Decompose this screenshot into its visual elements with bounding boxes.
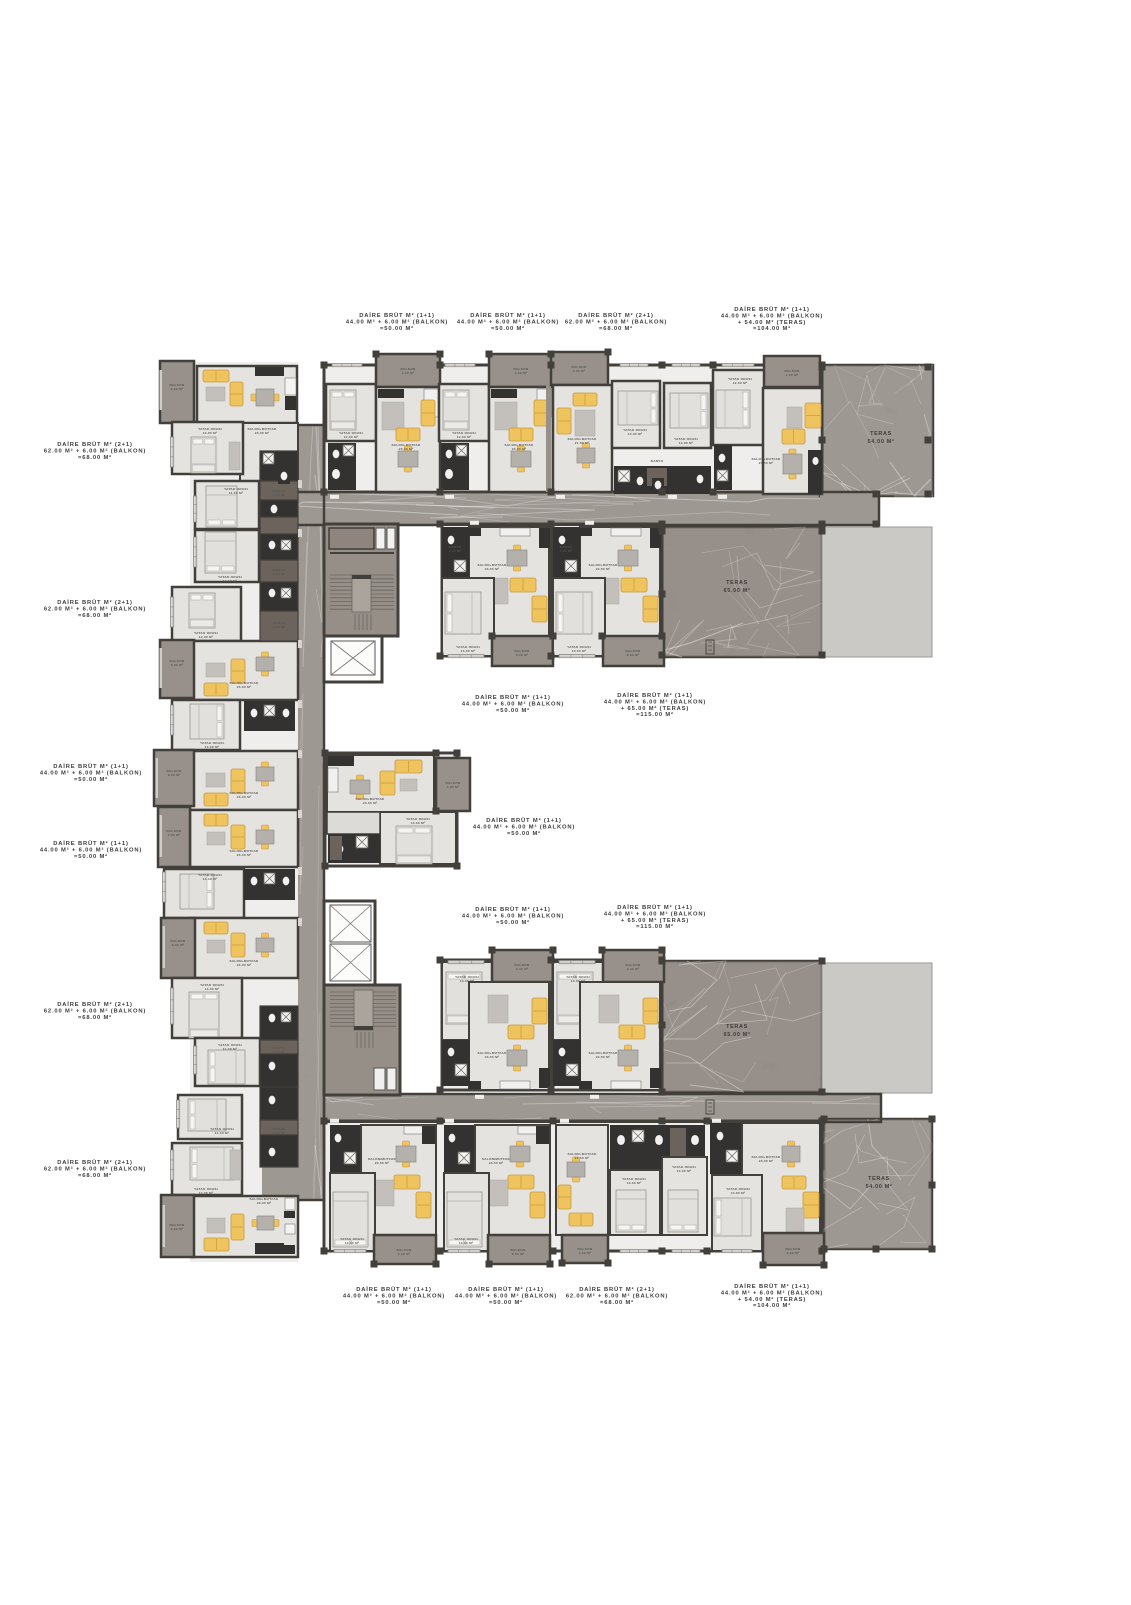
svg-text:44.00 M² + 6.00 M² (BALKON): 44.00 M² + 6.00 M² (BALKON): [462, 700, 564, 707]
svg-text:23.00 M²: 23.00 M²: [257, 1201, 272, 1205]
svg-text:13.00 M²: 13.00 M²: [461, 649, 476, 653]
svg-text:6.00 M²: 6.00 M²: [787, 1251, 800, 1255]
svg-text:44.00 M² + 6.00 M² (BALKON): 44.00 M² + 6.00 M² (BALKON): [604, 910, 706, 917]
svg-text:=50.00 M²: =50.00 M²: [74, 776, 108, 783]
svg-text:6.00 M²: 6.00 M²: [168, 833, 181, 837]
svg-text:=115.00 M²: =115.00 M²: [636, 711, 674, 718]
svg-text:=68.00 M²: =68.00 M²: [600, 1299, 634, 1306]
svg-text:+ 54.00 M² (TERAS): + 54.00 M² (TERAS): [738, 1296, 806, 1303]
svg-text:6.00 M²: 6.00 M²: [171, 1227, 184, 1231]
svg-text:11.00 M²: 11.00 M²: [215, 1131, 229, 1135]
svg-text:44.00 M² + 6.00 M² (BALKON): 44.00 M² + 6.00 M² (BALKON): [721, 312, 823, 319]
svg-text:6.00 M²: 6.00 M²: [171, 663, 184, 667]
svg-text:DAİRE BRÜT M² (1+1): DAİRE BRÜT M² (1+1): [356, 1286, 432, 1293]
svg-text:6.00 M²: 6.00 M²: [172, 943, 185, 947]
svg-text:10.00 M²: 10.00 M²: [628, 432, 643, 436]
svg-text:DAİRE BRÜT M² (1+1): DAİRE BRÜT M² (1+1): [470, 312, 546, 319]
svg-text:11.00 M²: 11.00 M²: [223, 1047, 237, 1051]
svg-text:23.00 M²: 23.00 M²: [237, 853, 252, 857]
svg-text:4.00 M²: 4.00 M²: [273, 625, 286, 629]
svg-text:=50.00 M²: =50.00 M²: [489, 1299, 523, 1306]
svg-text:23.50 M²: 23.50 M²: [759, 461, 774, 465]
svg-text:=68.00 M²: =68.00 M²: [78, 1014, 112, 1021]
svg-text:DAİRE BRÜT M² (1+1): DAİRE BRÜT M² (1+1): [475, 694, 551, 701]
svg-text:44.00 M² + 6.00 M² (BALKON): 44.00 M² + 6.00 M² (BALKON): [473, 823, 575, 830]
svg-text:13.00 M²: 13.00 M²: [731, 1191, 746, 1195]
svg-text:23.00 M²: 23.00 M²: [759, 1159, 774, 1163]
svg-text:54.00 M²: 54.00 M²: [868, 439, 895, 445]
svg-text:TERAS: TERAS: [868, 1176, 890, 1182]
svg-text:4.00 M²: 4.00 M²: [515, 371, 528, 375]
svg-text:TERAS: TERAS: [726, 1024, 748, 1030]
svg-text:=50.00 M²: =50.00 M²: [377, 1299, 411, 1306]
svg-text:DAİRE BRÜT M² (1+1): DAİRE BRÜT M² (1+1): [734, 306, 810, 313]
svg-text:23.00 M²: 23.00 M²: [255, 431, 270, 435]
svg-text:21.50 M²: 21.50 M²: [575, 441, 590, 445]
svg-text:6.00 M²: 6.00 M²: [516, 653, 529, 657]
svg-text:13.00 M²: 13.00 M²: [205, 745, 220, 749]
svg-text:DAİRE BRÜT M² (1+1): DAİRE BRÜT M² (1+1): [53, 763, 129, 770]
svg-text:12.00 M²: 12.00 M²: [344, 435, 359, 439]
svg-text:23.50 M²: 23.50 M²: [596, 567, 611, 571]
svg-text:62.00 M² + 6.00 M² (BALKON): 62.00 M² + 6.00 M² (BALKON): [44, 447, 146, 454]
svg-text:DAİRE BRÜT M² (2+1): DAİRE BRÜT M² (2+1): [57, 1001, 133, 1008]
svg-text:4.00 M²: 4.00 M²: [560, 549, 573, 553]
svg-text:=68.00 M²: =68.00 M²: [599, 325, 633, 332]
svg-text:10.00 M²: 10.00 M²: [627, 1181, 642, 1185]
svg-text:DAİRE BRÜT M² (1+1): DAİRE BRÜT M² (1+1): [734, 1283, 810, 1290]
svg-text:12.00 M²: 12.00 M²: [457, 435, 472, 439]
svg-text:23.00 M²: 23.00 M²: [399, 447, 414, 451]
svg-text:4.00 M²: 4.00 M²: [786, 373, 799, 377]
svg-text:44.00 M² + 6.00 M² (BALKON): 44.00 M² + 6.00 M² (BALKON): [346, 318, 448, 325]
svg-text:23.50 M²: 23.50 M²: [485, 567, 500, 571]
svg-text:DAİRE BRÜT M² (2+1): DAİRE BRÜT M² (2+1): [57, 599, 133, 606]
svg-text:=50.00 M²: =50.00 M²: [380, 325, 414, 332]
svg-text:=50.00 M²: =50.00 M²: [507, 830, 541, 837]
svg-text:4.00 M²: 4.00 M²: [573, 369, 586, 373]
svg-text:=115.00 M²: =115.00 M²: [636, 923, 674, 930]
svg-text:44.00 M² + 6.00 M² (BALKON): 44.00 M² + 6.00 M² (BALKON): [462, 912, 564, 919]
svg-text:DAİRE BRÜT M² (2+1): DAİRE BRÜT M² (2+1): [579, 1286, 655, 1293]
svg-text:4.00 M²: 4.00 M²: [402, 371, 415, 375]
svg-text:4.40 M²: 4.40 M²: [627, 967, 640, 971]
svg-text:44.00 M² + 6.00 M² (BALKON): 44.00 M² + 6.00 M² (BALKON): [343, 1292, 445, 1299]
svg-text:DAİRE BRÜT M² (1+1): DAİRE BRÜT M² (1+1): [468, 1286, 544, 1293]
svg-text:BANYO: BANYO: [651, 459, 664, 463]
svg-text:23.00 M²: 23.00 M²: [512, 447, 527, 451]
svg-text:DAİRE BRÜT M² (1+1): DAİRE BRÜT M² (1+1): [359, 312, 435, 319]
svg-text:=68.00 M²: =68.00 M²: [78, 454, 112, 461]
svg-text:DAİRE BRÜT M² (1+1): DAİRE BRÜT M² (1+1): [475, 906, 551, 913]
svg-text:DAİRE BRÜT M² (2+1): DAİRE BRÜT M² (2+1): [57, 441, 133, 448]
svg-text:23.50 M²: 23.50 M²: [596, 1055, 611, 1059]
svg-text:23.00 M²: 23.00 M²: [363, 801, 378, 805]
svg-text:6.00 M²: 6.00 M²: [171, 387, 184, 391]
svg-text:13.00 M²: 13.00 M²: [679, 441, 694, 445]
svg-text:DAİRE BRÜT M² (2+1): DAİRE BRÜT M² (2+1): [578, 312, 654, 319]
svg-text:6.00 M²: 6.00 M²: [398, 1252, 411, 1256]
svg-text:44.00 M² + 6.00 M² (BALKON): 44.00 M² + 6.00 M² (BALKON): [604, 698, 706, 705]
svg-text:5.50 M²: 5.50 M²: [273, 1050, 286, 1054]
svg-text:13.00 M²: 13.00 M²: [203, 877, 218, 881]
svg-text:13.00 M²: 13.00 M²: [205, 987, 220, 991]
svg-text:6.00 M²: 6.00 M²: [627, 653, 640, 657]
svg-text:+ 65.00 M² (TERAS): + 65.00 M² (TERAS): [621, 705, 689, 712]
svg-text:DAİRE BRÜT M² (1+1): DAİRE BRÜT M² (1+1): [53, 840, 129, 847]
svg-text:11.00 M²: 11.00 M²: [229, 491, 243, 495]
svg-text:12.00 M²: 12.00 M²: [733, 381, 748, 385]
svg-text:11.00 M²: 11.00 M²: [223, 579, 237, 583]
svg-text:=104.00 M²: =104.00 M²: [753, 1302, 791, 1309]
svg-text:12.00 M²: 12.00 M²: [203, 431, 218, 435]
svg-text:23.00 M²: 23.00 M²: [237, 795, 252, 799]
svg-text:62.00 M² + 6.00 M² (BALKON): 62.00 M² + 6.00 M² (BALKON): [44, 1007, 146, 1014]
svg-text:44.00 M² + 6.00 M² (BALKON): 44.00 M² + 6.00 M² (BALKON): [721, 1289, 823, 1296]
svg-text:4.00 M²: 4.00 M²: [579, 1251, 592, 1255]
svg-text:13.00 M²: 13.00 M²: [572, 649, 587, 653]
svg-text:TERAS: TERAS: [870, 431, 892, 437]
svg-text:62.00 M² + 6.00 M² (BALKON): 62.00 M² + 6.00 M² (BALKON): [44, 1165, 146, 1172]
svg-text:DAİRE BRÜT M² (1+1): DAİRE BRÜT M² (1+1): [486, 817, 562, 824]
svg-text:4.00 M²: 4.00 M²: [273, 493, 286, 497]
svg-text:4.00 M²: 4.00 M²: [447, 785, 460, 789]
svg-text:13.00 M²: 13.00 M²: [459, 1241, 474, 1245]
svg-text:23.00 M²: 23.00 M²: [237, 963, 252, 967]
svg-text:23.50 M²: 23.50 M²: [485, 1055, 500, 1059]
svg-text:4.00 M²: 4.00 M²: [273, 1131, 286, 1135]
svg-text:+ 65.00 M² (TERAS): + 65.00 M² (TERAS): [621, 917, 689, 924]
svg-text:DAİRE BRÜT M² (1+1): DAİRE BRÜT M² (1+1): [617, 692, 693, 699]
svg-text:21.50 M²: 21.50 M²: [575, 1156, 590, 1160]
svg-text:23.00 M²: 23.00 M²: [237, 685, 252, 689]
svg-text:4.40 M²: 4.40 M²: [516, 967, 529, 971]
svg-text:=50.00 M²: =50.00 M²: [496, 919, 530, 926]
svg-text:62.00 M² + 6.00 M² (BALKON): 62.00 M² + 6.00 M² (BALKON): [566, 1292, 668, 1299]
svg-text:62.00 M² + 6.00 M² (BALKON): 62.00 M² + 6.00 M² (BALKON): [44, 605, 146, 612]
svg-text:=50.00 M²: =50.00 M²: [74, 853, 108, 860]
svg-text:23.50 M²: 23.50 M²: [375, 1161, 390, 1165]
svg-text:6.00 M²: 6.00 M²: [512, 1252, 525, 1256]
svg-text:DAİRE BRÜT M² (2+1): DAİRE BRÜT M² (2+1): [57, 1159, 133, 1166]
svg-text:=104.00 M²: =104.00 M²: [753, 325, 791, 332]
svg-text:12.00 M²: 12.00 M²: [199, 635, 214, 639]
svg-text:44.00 M² + 6.00 M² (BALKON): 44.00 M² + 6.00 M² (BALKON): [40, 846, 142, 853]
svg-text:65.00 M²: 65.00 M²: [724, 1032, 751, 1038]
svg-text:=68.00 M²: =68.00 M²: [78, 1172, 112, 1179]
svg-text:TERAS: TERAS: [726, 580, 748, 586]
svg-text:44.00 M² + 6.00 M² (BALKON): 44.00 M² + 6.00 M² (BALKON): [455, 1292, 557, 1299]
svg-text:=50.00 M²: =50.00 M²: [496, 707, 530, 714]
svg-text:4.00 M²: 4.00 M²: [449, 549, 462, 553]
svg-text:13.00 M²: 13.00 M²: [199, 1191, 214, 1195]
svg-text:23.50 M²: 23.50 M²: [489, 1161, 504, 1165]
svg-text:5.50 M²: 5.50 M²: [273, 572, 286, 576]
svg-text:13.00 M²: 13.00 M²: [411, 821, 426, 825]
svg-text:=50.00 M²: =50.00 M²: [491, 325, 525, 332]
svg-text:=68.00 M²: =68.00 M²: [78, 612, 112, 619]
svg-text:DAİRE BRÜT M² (1+1): DAİRE BRÜT M² (1+1): [617, 904, 693, 911]
svg-text:13.00 M²: 13.00 M²: [677, 1169, 692, 1173]
svg-text:44.00 M² + 6.00 M² (BALKON): 44.00 M² + 6.00 M² (BALKON): [457, 318, 559, 325]
svg-text:54.00 M²: 54.00 M²: [866, 1184, 893, 1190]
svg-text:13.00 M²: 13.00 M²: [345, 1241, 360, 1245]
svg-text:6.00 M²: 6.00 M²: [168, 773, 181, 777]
svg-text:44.00 M² + 6.00 M² (BALKON): 44.00 M² + 6.00 M² (BALKON): [40, 769, 142, 776]
svg-text:62.00 M² + 6.00 M² (BALKON): 62.00 M² + 6.00 M² (BALKON): [565, 318, 667, 325]
svg-text:65.00 M²: 65.00 M²: [724, 588, 751, 594]
svg-text:+ 54.00 M² (TERAS): + 54.00 M² (TERAS): [738, 319, 806, 326]
